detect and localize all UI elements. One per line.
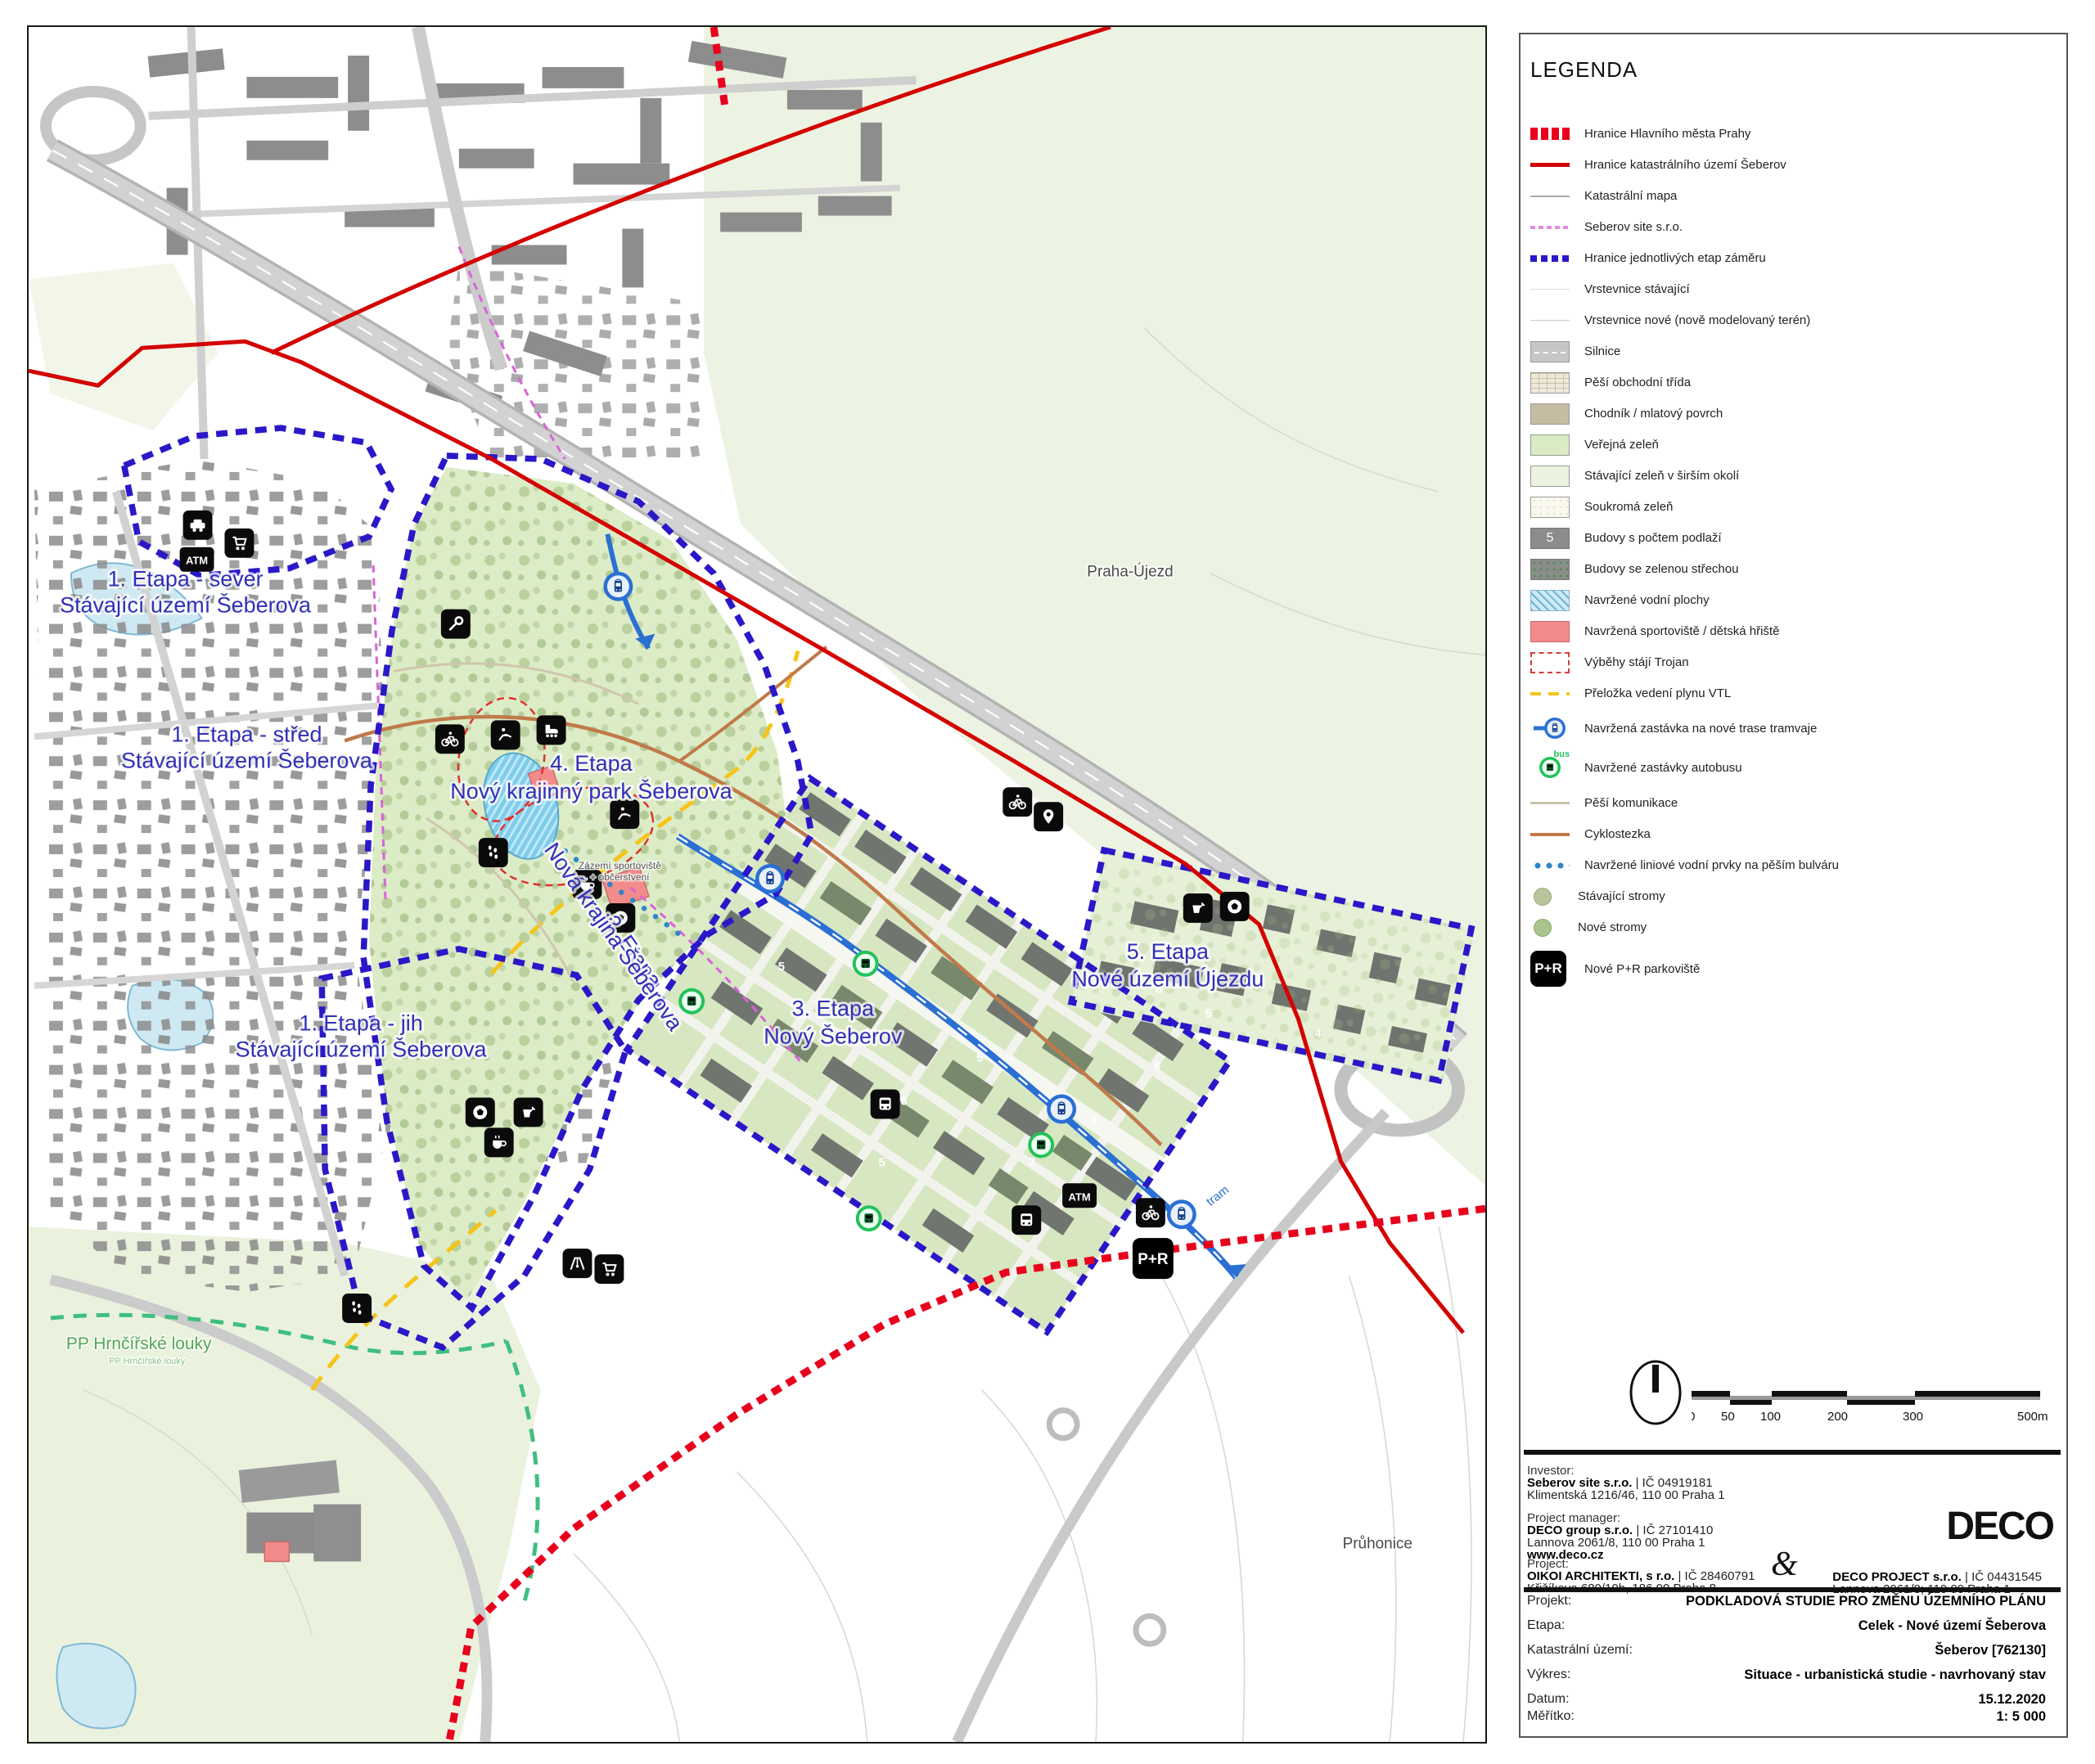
contour-new-swatch xyxy=(1530,320,1570,321)
legend-item: Stávající zeleň v širším okolí xyxy=(1530,465,2054,487)
map-canvas[interactable]: 5 4 6 5 7 4 6 5 8 5 5 4 ATM ATM xyxy=(27,25,1487,1744)
wrench-icon xyxy=(441,610,471,639)
label-pp-louky: PP Hrnčířské louky xyxy=(66,1334,212,1353)
legend-title: LEGENDA xyxy=(1530,57,1638,83)
bus-stop-icon xyxy=(1028,1132,1054,1158)
bus-stop-icon xyxy=(853,951,879,977)
tram-stop-icon xyxy=(1167,1199,1196,1229)
svg-text:4: 4 xyxy=(1091,1113,1098,1127)
svg-text:5: 5 xyxy=(878,1155,885,1169)
svg-text:P+R: P+R xyxy=(1138,1251,1169,1268)
label-etapa1-jih: 1. Etapa - jih xyxy=(299,1011,422,1036)
svg-text:50: 50 xyxy=(1721,1410,1735,1424)
label-pruhonice: Průhonice xyxy=(1343,1535,1412,1552)
legend-item: Hranice Hlavního města Prahy xyxy=(1530,123,2054,145)
legend-item: P+RNové P+R parkoviště xyxy=(1530,947,2054,990)
svg-text:300: 300 xyxy=(1903,1410,1923,1424)
table-row: Katastrální území:Šeberov [762130] xyxy=(1527,1643,2046,1658)
legend-item: Chodník / mlatový povrch xyxy=(1530,403,2054,425)
coffee-icon xyxy=(484,1127,514,1157)
table-row: Výkres:Situace - urbanistická studie - n… xyxy=(1527,1667,2046,1683)
investor-block: Investor: Seberov site s.r.o. | IČ 04919… xyxy=(1527,1465,1725,1501)
prague-boundary-swatch xyxy=(1530,128,1570,140)
existing-tree-icon xyxy=(1534,888,1552,906)
trojan-paddock-swatch xyxy=(1530,652,1570,673)
legend-item: Navržená zastávka na nové trase tramvaje xyxy=(1530,713,2054,743)
svg-text:+ občerstvení: + občerstvení xyxy=(590,871,650,883)
legend-item: Hranice jednotlivých etap záměru xyxy=(1530,247,2054,269)
svg-text:5: 5 xyxy=(976,1051,983,1065)
legend-item: Cyklostezka xyxy=(1530,823,2054,845)
water-area-swatch xyxy=(1530,590,1570,611)
svg-text:6: 6 xyxy=(900,1094,907,1108)
cycle-path-swatch xyxy=(1530,833,1570,836)
label-etapa3: 3. Etapa xyxy=(792,997,874,1021)
svg-text:Nový krajinný park Šeberova: Nový krajinný park Šeberova xyxy=(450,778,732,803)
legend-item: Veřejná zeleň xyxy=(1530,434,2054,456)
etapa-boundary-swatch xyxy=(1530,255,1570,262)
cadastre-boundary-swatch xyxy=(1530,163,1570,167)
gas-line-swatch xyxy=(1530,692,1570,695)
table-row: Datum:15.12.2020 xyxy=(1527,1692,2046,1708)
seberov-site-swatch xyxy=(1530,226,1570,229)
tram-stop-icon xyxy=(1047,1095,1076,1124)
legend-item: Vrstevnice nové (nově modelovaný terén) xyxy=(1530,309,2054,331)
title-table: Projekt:PODKLADOVÁ STUDIE PRO ZMĚNU ÚZEM… xyxy=(1527,1594,2046,1734)
project-manager-block: Project manager: DECO group s.r.o. | IČ … xyxy=(1527,1512,1713,1561)
pin-icon xyxy=(1034,802,1063,831)
bus-front-icon xyxy=(1011,1205,1041,1235)
cart-icon xyxy=(224,529,254,558)
legend-item: bus Navržené zastávky autobusu xyxy=(1530,753,2054,782)
legend-item: Soukromá zeleň xyxy=(1530,496,2054,518)
ampersand: & xyxy=(1771,1545,1798,1584)
divider xyxy=(1524,1587,2061,1592)
horse-icon xyxy=(491,720,520,749)
ball-icon xyxy=(1220,892,1250,921)
svg-text:0: 0 xyxy=(1692,1410,1695,1424)
legend-item: Výběhy stájí Trojan xyxy=(1530,651,2054,673)
svg-text:Stávající území Šeberova: Stávající území Šeberova xyxy=(121,747,372,772)
legend-item: Budovy se zelenou střechou xyxy=(1530,558,2054,580)
skate-icon xyxy=(537,715,566,745)
etapa-value: Celek - Nové území Šeberova xyxy=(1858,1618,2046,1634)
legend-item: Silnice xyxy=(1530,340,2054,362)
svg-text:ATM: ATM xyxy=(1069,1190,1091,1203)
deco-logo: DECO xyxy=(1946,1504,2053,1549)
legend-item: Pěší komunikace xyxy=(1530,792,2054,814)
sport-area-swatch xyxy=(1530,621,1570,642)
project-title: PODKLADOVÁ STUDIE PRO ZMĚNU ÚZEMNÍHO PLÁ… xyxy=(1686,1594,2046,1609)
scale-bar: 0 50 100 200 300 500m xyxy=(1692,1384,2052,1433)
tram-stop-icon xyxy=(1530,718,1570,739)
svg-text:5: 5 xyxy=(778,960,785,974)
bucket-icon xyxy=(1183,893,1213,923)
playground-icon xyxy=(563,1249,592,1278)
svg-text:4: 4 xyxy=(1314,1027,1322,1041)
legend-item: Přeložka vedení plynu VTL xyxy=(1530,682,2054,704)
site-plan-map: 5 4 6 5 7 4 6 5 8 5 5 4 ATM ATM xyxy=(29,27,1485,1742)
contour-existing-swatch xyxy=(1530,289,1570,290)
date-value: 15.12.2020 xyxy=(1978,1692,2046,1708)
label-praha-ujezd: Praha-Újezd xyxy=(1087,563,1173,581)
svg-text:Nové území Újezdu: Nové území Újezdu xyxy=(1071,966,1264,992)
sidewalk-swatch xyxy=(1530,403,1570,425)
label-etapa4: 4. Etapa xyxy=(550,751,632,776)
horse-icon xyxy=(610,799,639,829)
footpath-swatch xyxy=(1530,802,1570,804)
cart-icon xyxy=(594,1254,624,1284)
label-etapa1-stred: 1. Etapa - střed xyxy=(171,722,322,746)
bus-stop-icon: bus xyxy=(1530,757,1570,778)
svg-text:100: 100 xyxy=(1760,1410,1781,1424)
svg-text:5: 5 xyxy=(1205,1007,1212,1021)
bus-stop-icon xyxy=(856,1205,882,1231)
bike-icon xyxy=(1002,787,1032,817)
legend-item: Vrstevnice stávající xyxy=(1530,278,2054,300)
footprints-icon xyxy=(342,1294,372,1323)
water-feature-dots-swatch xyxy=(1530,862,1570,869)
new-tree-icon xyxy=(1534,919,1552,937)
road-swatch xyxy=(1530,341,1570,362)
table-row: Projekt:PODKLADOVÁ STUDIE PRO ZMĚNU ÚZEM… xyxy=(1527,1594,2046,1609)
public-green-swatch xyxy=(1530,434,1570,456)
legend-item: Pěší obchodní třída xyxy=(1530,371,2054,394)
legend-item: Katastrální mapa xyxy=(1530,185,2054,207)
label-etapa1-sever: 1. Etapa - sever xyxy=(108,567,264,592)
tram-stop-icon xyxy=(603,572,633,601)
legend-list: Hranice Hlavního města Prahy Hranice kat… xyxy=(1530,123,2054,998)
bike-icon xyxy=(1136,1198,1165,1227)
svg-text:Nový Šeberov: Nový Šeberov xyxy=(764,1024,903,1049)
bucket-icon xyxy=(514,1098,543,1127)
footprints-icon xyxy=(479,838,508,867)
table-row: Etapa:Celek - Nové území Šeberova xyxy=(1527,1618,2046,1634)
legend-item: Navržená sportoviště / dětská hřiště xyxy=(1530,620,2054,642)
legend-item: Navržené liniové vodní prvky na pěším bu… xyxy=(1530,854,2054,876)
svg-text:PP Hrnčířské louky: PP Hrnčířské louky xyxy=(109,1357,186,1366)
north-arrow xyxy=(1625,1353,1686,1432)
bus-front-icon xyxy=(871,1090,900,1119)
cadastre-value: Šeberov [762130] xyxy=(1935,1643,2046,1658)
building-floors-swatch: 5 xyxy=(1530,528,1570,549)
legend-item: Stávající stromy xyxy=(1530,885,2054,907)
bike-icon xyxy=(435,724,465,754)
legend-item: Seberov site s.r.o. xyxy=(1530,216,2054,238)
ball-icon xyxy=(466,1098,495,1127)
existing-green-swatch xyxy=(1530,466,1570,487)
svg-text:500m: 500m xyxy=(2017,1410,2048,1424)
tram-stop-icon xyxy=(755,864,785,893)
atm-icon: ATM xyxy=(1062,1183,1097,1208)
shopping-street-swatch xyxy=(1530,372,1570,394)
legend-item: Nové stromy xyxy=(1530,916,2054,938)
bus-stop-icon xyxy=(678,988,705,1015)
svg-text:6: 6 xyxy=(1154,1060,1160,1073)
pr-icon: P+R xyxy=(1133,1238,1174,1279)
scale-value: 1: 5 000 xyxy=(1996,1709,2046,1725)
cadastre-map-swatch xyxy=(1530,196,1570,197)
car-icon xyxy=(183,511,213,540)
divider xyxy=(1524,1450,2061,1455)
svg-text:ATM: ATM xyxy=(186,555,208,567)
legend-and-title-panel: LEGENDA Hranice Hlavního města Prahy Hra… xyxy=(1519,33,2068,1738)
svg-text:Stávající území Šeberova: Stávající území Šeberova xyxy=(236,1037,487,1062)
table-row: Měřítko:1: 5 000 xyxy=(1527,1709,2046,1725)
label-etapa5: 5. Etapa xyxy=(1127,939,1209,964)
svg-text:Stávající území Šeberova: Stávající území Šeberova xyxy=(60,592,311,618)
green-roof-swatch xyxy=(1530,559,1570,580)
legend-item: 5Budovy s počtem podlaží xyxy=(1530,527,2054,549)
legend-item: Navržené vodní plochy xyxy=(1530,589,2054,611)
svg-text:7: 7 xyxy=(1029,1155,1035,1169)
drawing-value: Situace - urbanistická studie - navrhova… xyxy=(1744,1667,2046,1683)
pr-icon: P+R xyxy=(1530,951,1566,987)
private-green-swatch xyxy=(1530,497,1570,518)
legend-item: Hranice katastrálního území Šeberov xyxy=(1530,154,2054,176)
label-zazemi: Zázemí sportoviště xyxy=(579,860,661,871)
svg-text:200: 200 xyxy=(1827,1410,1848,1424)
